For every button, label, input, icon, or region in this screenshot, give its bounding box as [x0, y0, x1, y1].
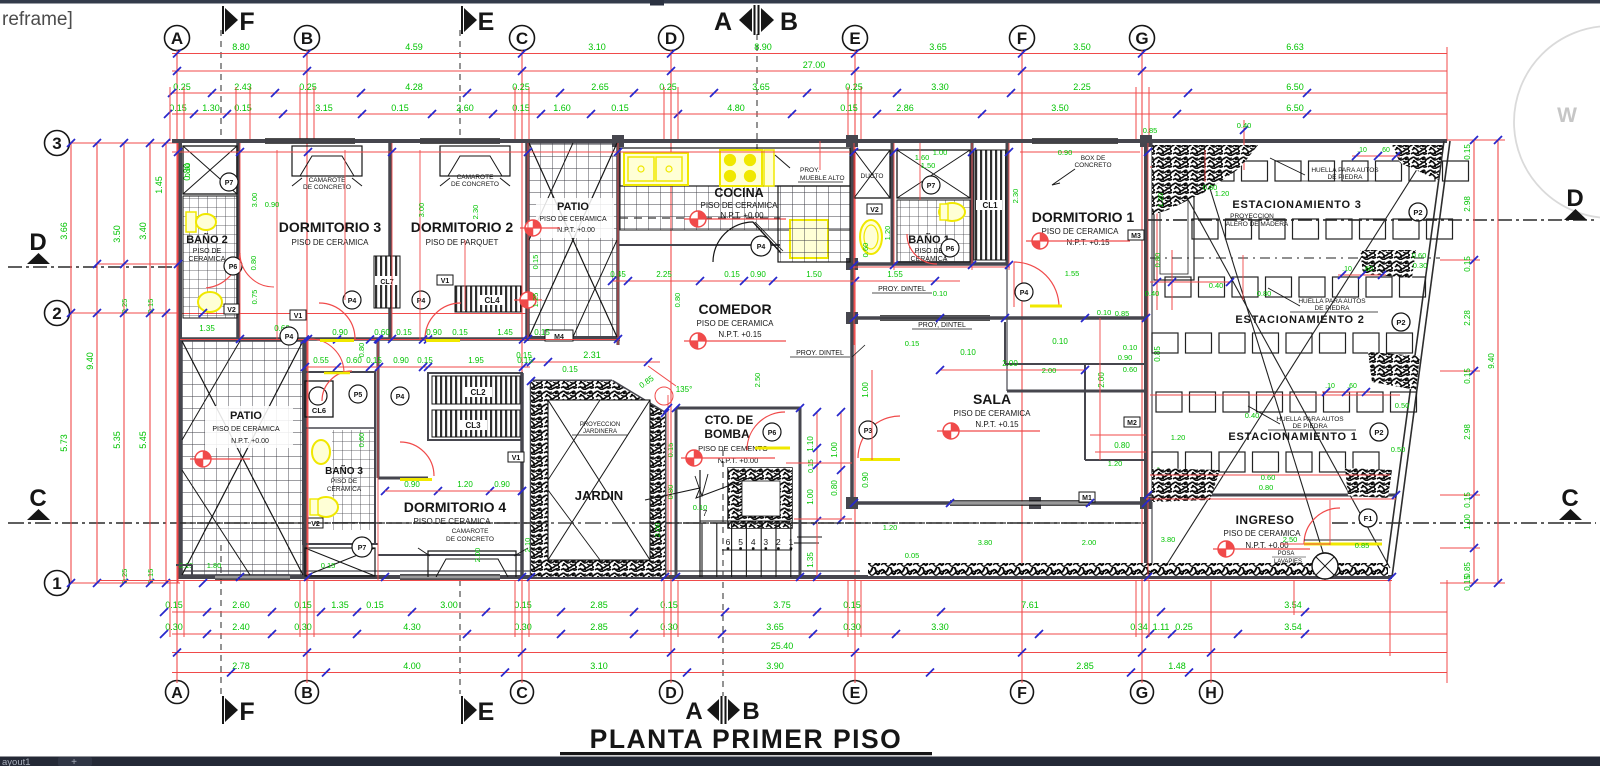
svg-text:0.10: 0.10 — [960, 348, 976, 357]
svg-text:P4: P4 — [396, 394, 405, 401]
svg-text:0.85: 0.85 — [1115, 309, 1130, 318]
svg-text:A: A — [685, 698, 702, 725]
svg-text:DORMITORIO 4: DORMITORIO 4 — [404, 499, 507, 515]
svg-text:0.90: 0.90 — [1118, 353, 1133, 362]
svg-text:0.15: 0.15 — [724, 270, 740, 279]
svg-text:A: A — [171, 29, 183, 48]
svg-text:N.P.T. +0.15: N.P.T. +0.15 — [1066, 238, 1110, 247]
svg-text:0.50: 0.50 — [1391, 445, 1406, 454]
svg-text:0.15: 0.15 — [562, 365, 578, 374]
svg-text:N.P.T. +0.15: N.P.T. +0.15 — [718, 330, 762, 339]
svg-text:reframe]: reframe] — [2, 9, 73, 30]
svg-text:1.95: 1.95 — [468, 356, 484, 365]
svg-text:G: G — [1136, 685, 1148, 702]
svg-text:N.P.T. +0.00: N.P.T. +0.00 — [557, 227, 595, 234]
svg-text:3.50: 3.50 — [112, 225, 122, 243]
svg-text:0.15: 0.15 — [611, 103, 629, 113]
svg-text:MUEBLE ALTO: MUEBLE ALTO — [800, 175, 845, 182]
svg-text:0.75: 0.75 — [250, 290, 259, 305]
svg-text:1.00: 1.00 — [806, 489, 815, 505]
svg-text:0.90: 0.90 — [265, 200, 280, 209]
svg-text:BAÑO 2: BAÑO 2 — [186, 233, 228, 246]
svg-text:3.54: 3.54 — [1284, 600, 1302, 610]
svg-text:8.90: 8.90 — [754, 42, 772, 52]
svg-text:0.15: 0.15 — [666, 443, 675, 458]
svg-text:0.80: 0.80 — [1153, 253, 1162, 268]
svg-text:7.61: 7.61 — [1021, 600, 1039, 610]
svg-text:DE PIEDRA: DE PIEDRA — [1314, 305, 1350, 312]
svg-text:3.80: 3.80 — [1161, 535, 1176, 544]
svg-text:0.60: 0.60 — [1123, 365, 1138, 374]
svg-text:PISO DE CERAMICA: PISO DE CERAMICA — [701, 201, 779, 210]
svg-text:1.20: 1.20 — [1108, 459, 1123, 468]
svg-text:1.50: 1.50 — [921, 161, 936, 170]
svg-text:P2: P2 — [1374, 428, 1383, 437]
svg-text:0.80: 0.80 — [1259, 483, 1274, 492]
svg-text:3.00: 3.00 — [250, 193, 259, 208]
svg-text:D: D — [29, 229, 46, 256]
svg-text:0.60: 0.60 — [1261, 473, 1276, 482]
svg-text:P7: P7 — [358, 545, 367, 552]
svg-text:P5: P5 — [354, 392, 363, 399]
svg-text:0.10: 0.10 — [933, 289, 948, 298]
svg-text:+: + — [71, 757, 77, 766]
svg-text:G: G — [1135, 29, 1148, 48]
svg-text:W: W — [1557, 104, 1577, 127]
svg-text:0.80: 0.80 — [666, 485, 675, 500]
svg-text:F: F — [1017, 29, 1027, 48]
svg-text:0.25: 0.25 — [659, 82, 677, 92]
svg-text:E: E — [850, 685, 861, 702]
svg-text:9.40: 9.40 — [1487, 353, 1496, 369]
svg-text:0.90: 0.90 — [861, 472, 870, 488]
svg-text:9.40: 9.40 — [85, 352, 95, 370]
svg-text:PISO DE CERAMICA: PISO DE CERAMICA — [292, 238, 370, 247]
svg-text:PISO DE PARQUET: PISO DE PARQUET — [426, 238, 499, 247]
svg-text:V1: V1 — [294, 313, 303, 320]
svg-text:0.60: 0.60 — [357, 433, 366, 448]
svg-text:2.00: 2.00 — [1082, 538, 1097, 547]
svg-text:COCINA: COCINA — [714, 186, 763, 200]
svg-text:DE PIEDRA: DE PIEDRA — [1292, 423, 1328, 430]
svg-text:0.15: 0.15 — [321, 561, 336, 570]
svg-text:BOMBA: BOMBA — [704, 427, 750, 441]
svg-text:DE PIEDRA: DE PIEDRA — [1327, 174, 1363, 181]
svg-text:DE CONCRETO: DE CONCRETO — [446, 536, 494, 543]
svg-text:2.10: 2.10 — [523, 538, 532, 553]
svg-text:3.65: 3.65 — [766, 622, 784, 632]
svg-text:1.20: 1.20 — [883, 523, 898, 532]
svg-text:2.50: 2.50 — [1283, 535, 1298, 544]
svg-text:3.80: 3.80 — [978, 538, 993, 547]
svg-text:0.15: 0.15 — [1463, 368, 1472, 384]
svg-text:0.40: 0.40 — [1145, 289, 1160, 298]
svg-text:2.85: 2.85 — [590, 622, 608, 632]
svg-text:C: C — [29, 485, 46, 512]
svg-text:0.15: 0.15 — [531, 255, 540, 270]
svg-text:B: B — [301, 685, 313, 702]
svg-text:1.25: 1.25 — [531, 293, 540, 308]
svg-text:2.65: 2.65 — [591, 82, 609, 92]
svg-text:0.25: 0.25 — [1175, 622, 1193, 632]
svg-text:BAÑO 3: BAÑO 3 — [325, 464, 363, 477]
svg-text:1.20: 1.20 — [457, 480, 473, 489]
svg-text:0.85: 0.85 — [1355, 541, 1370, 550]
svg-text:P2: P2 — [1396, 318, 1405, 327]
svg-text:P7: P7 — [225, 180, 234, 187]
svg-text:1.20: 1.20 — [1171, 433, 1186, 442]
svg-text:D: D — [665, 685, 677, 702]
svg-text:0.90: 0.90 — [494, 480, 510, 489]
svg-text:3.50: 3.50 — [1051, 103, 1069, 113]
svg-text:PROY.: PROY. — [800, 167, 820, 174]
svg-text:4.30: 4.30 — [403, 622, 421, 632]
svg-text:P4: P4 — [417, 298, 426, 305]
svg-text:2.31: 2.31 — [583, 350, 601, 360]
svg-text:0.15: 0.15 — [1463, 492, 1472, 508]
svg-text:PROY. DINTEL: PROY. DINTEL — [796, 350, 844, 357]
svg-text:E: E — [478, 698, 495, 726]
svg-text:PISO DE: PISO DE — [915, 248, 944, 255]
svg-text:D: D — [1566, 185, 1583, 212]
svg-text:E: E — [849, 29, 860, 48]
svg-text:A: A — [171, 685, 183, 702]
svg-text:4.80: 4.80 — [727, 103, 745, 113]
svg-text:PROYECCION: PROYECCION — [580, 422, 620, 428]
svg-text:B: B — [742, 698, 759, 725]
svg-text:1.00: 1.00 — [1463, 514, 1472, 530]
svg-text:1.60: 1.60 — [553, 103, 571, 113]
svg-text:1.45: 1.45 — [154, 176, 164, 194]
svg-text:V1: V1 — [512, 455, 521, 462]
svg-text:0.80: 0.80 — [357, 343, 366, 358]
svg-text:1.50: 1.50 — [806, 270, 822, 279]
svg-text:JARDINERA: JARDINERA — [583, 429, 617, 435]
svg-text:DORMITORIO 2: DORMITORIO 2 — [411, 219, 514, 235]
svg-text:B: B — [301, 29, 313, 48]
svg-text:CERAMICA: CERAMICA — [327, 486, 362, 493]
svg-text:2.30: 2.30 — [1011, 189, 1020, 204]
svg-text:2.30: 2.30 — [471, 205, 480, 220]
svg-text:2.86: 2.86 — [896, 103, 914, 113]
svg-text:.10: .10 — [1342, 266, 1352, 273]
svg-text:1.35: 1.35 — [199, 324, 215, 333]
svg-text:0.40: 0.40 — [1237, 121, 1252, 130]
svg-text:D: D — [665, 29, 677, 48]
svg-text:0.15: 0.15 — [1463, 144, 1472, 160]
svg-text:M4: M4 — [554, 334, 564, 341]
svg-text:0.10: 0.10 — [693, 503, 708, 512]
svg-text:1.00: 1.00 — [861, 382, 870, 398]
svg-text:PISO DE CERAMICA: PISO DE CERAMICA — [1042, 227, 1120, 236]
svg-text:C: C — [1561, 485, 1578, 512]
svg-text:CL3: CL3 — [465, 421, 481, 430]
svg-text:2.00: 2.00 — [473, 548, 482, 563]
svg-text:CAMAROTE: CAMAROTE — [452, 528, 490, 535]
svg-text:ESTACIONAMIENTO 3: ESTACIONAMIENTO 3 — [1232, 199, 1361, 211]
svg-text:2.85: 2.85 — [1076, 661, 1094, 671]
svg-text:25.40: 25.40 — [771, 641, 794, 651]
svg-text:2.28: 2.28 — [1463, 310, 1472, 326]
svg-text:0.85: 0.85 — [1153, 346, 1162, 362]
svg-text:DORMITORIO 1: DORMITORIO 1 — [1032, 209, 1135, 225]
svg-text:H: H — [1205, 685, 1217, 702]
svg-text:1.55: 1.55 — [887, 270, 903, 279]
svg-text:0.15: 0.15 — [146, 299, 155, 314]
svg-text:0.30: 0.30 — [1413, 261, 1428, 270]
svg-text:ALERO DE MADERA: ALERO DE MADERA — [1226, 221, 1289, 228]
svg-text:C: C — [516, 685, 528, 702]
svg-text:P7: P7 — [927, 183, 936, 190]
svg-text:3.00: 3.00 — [417, 203, 426, 218]
svg-text:3.54: 3.54 — [1284, 622, 1302, 632]
svg-text:2.60: 2.60 — [232, 600, 250, 610]
svg-text:2: 2 — [52, 304, 61, 323]
svg-text:3.50: 3.50 — [1073, 42, 1091, 52]
svg-text:5.45: 5.45 — [138, 431, 148, 449]
svg-text:SALA: SALA — [973, 391, 1011, 407]
svg-text:1.80: 1.80 — [207, 561, 222, 570]
svg-text:5: 5 — [738, 537, 743, 547]
svg-text:CONCRETO: CONCRETO — [1074, 162, 1111, 169]
svg-text:0.15: 0.15 — [1463, 575, 1472, 591]
svg-text:0.60: 0.60 — [183, 163, 192, 178]
svg-text:0.80: 0.80 — [1114, 441, 1130, 450]
svg-text:DORMITORIO 3: DORMITORIO 3 — [279, 219, 382, 235]
svg-text:CL4: CL4 — [484, 296, 500, 305]
svg-text:0.30: 0.30 — [843, 622, 861, 632]
svg-text:PROY, DINTEL: PROY, DINTEL — [918, 322, 966, 329]
svg-text:0.90: 0.90 — [426, 328, 442, 337]
svg-text:1: 1 — [789, 537, 794, 547]
svg-text:PISO DE CERAMICA: PISO DE CERAMICA — [539, 216, 607, 223]
svg-text:0.10: 0.10 — [1097, 308, 1112, 317]
svg-text:0.80: 0.80 — [830, 480, 839, 496]
svg-text:0.15: 0.15 — [391, 103, 409, 113]
svg-text:1.20: 1.20 — [1156, 193, 1165, 208]
svg-text:P6: P6 — [229, 264, 238, 271]
svg-text:1.35: 1.35 — [806, 552, 815, 568]
svg-text:3.65: 3.65 — [929, 42, 947, 52]
svg-text:2.98: 2.98 — [1463, 196, 1472, 212]
svg-text:135°: 135° — [676, 385, 693, 394]
svg-text:ESTACIONAMIENTO 2: ESTACIONAMIENTO 2 — [1235, 314, 1364, 326]
svg-text:P6: P6 — [768, 430, 777, 437]
svg-text:1.48: 1.48 — [1168, 661, 1186, 671]
svg-text:PISO DE CERAMICA: PISO DE CERAMICA — [954, 409, 1032, 418]
svg-text:1.00: 1.00 — [830, 442, 839, 458]
svg-text:PROYECCION: PROYECCION — [1230, 213, 1274, 220]
svg-text:F: F — [1017, 685, 1027, 702]
svg-text:N.P.T. +0.00: N.P.T. +0.00 — [718, 456, 759, 465]
svg-text:4: 4 — [751, 537, 756, 547]
svg-text:0.90: 0.90 — [404, 480, 420, 489]
svg-text:1.11: 1.11 — [1153, 622, 1170, 632]
svg-text:PATIO: PATIO — [230, 410, 262, 422]
svg-text:0.80: 0.80 — [1257, 289, 1272, 298]
svg-text:6: 6 — [726, 537, 731, 547]
svg-text:BOX DE: BOX DE — [1081, 155, 1106, 162]
svg-text:M3: M3 — [1131, 233, 1141, 240]
svg-text:V2: V2 — [870, 207, 879, 214]
svg-text:6.50: 6.50 — [1286, 82, 1304, 92]
svg-text:0.25: 0.25 — [120, 569, 129, 584]
svg-text:0.60: 0.60 — [861, 243, 870, 258]
svg-text:0.15: 0.15 — [905, 339, 920, 348]
svg-text:1.45: 1.45 — [497, 328, 513, 337]
svg-text:0.85: 0.85 — [1143, 126, 1158, 135]
svg-text:P4: P4 — [348, 298, 357, 305]
svg-text:2.40: 2.40 — [232, 622, 250, 632]
svg-text:CAMAROTE: CAMAROTE — [457, 174, 495, 181]
svg-text:CERAMICA: CERAMICA — [189, 256, 226, 263]
svg-text:V2: V2 — [227, 307, 236, 314]
svg-text:F: F — [239, 698, 254, 726]
svg-text:PISO DE CERAMICA: PISO DE CERAMICA — [414, 517, 492, 526]
svg-text:PISO DE CERAMICA: PISO DE CERAMICA — [697, 319, 775, 328]
svg-text:V1: V1 — [441, 278, 450, 285]
svg-text:2.00: 2.00 — [1097, 372, 1106, 388]
svg-text:INGRESO: INGRESO — [1236, 513, 1295, 527]
svg-text:CL2: CL2 — [470, 388, 486, 397]
svg-text:3.30: 3.30 — [931, 622, 949, 632]
svg-text:4.59: 4.59 — [405, 42, 423, 52]
svg-text:M1: M1 — [1082, 495, 1092, 502]
svg-text:P4: P4 — [1020, 290, 1029, 297]
svg-text:3.66: 3.66 — [59, 222, 69, 240]
svg-text:3.10: 3.10 — [588, 42, 606, 52]
svg-text:5.73: 5.73 — [59, 434, 69, 452]
svg-text:0.30: 0.30 — [294, 622, 312, 632]
svg-text:0.10: 0.10 — [1123, 343, 1138, 352]
svg-text:E: E — [478, 8, 495, 36]
svg-text:CERAMICA: CERAMICA — [911, 256, 948, 263]
svg-text:3.75: 3.75 — [773, 600, 791, 610]
svg-text:CTO. DE: CTO. DE — [705, 413, 753, 427]
svg-text:0.80: 0.80 — [249, 256, 258, 271]
svg-text:0.25: 0.25 — [120, 299, 129, 314]
svg-text:0.90: 0.90 — [393, 356, 409, 365]
svg-text:2.25: 2.25 — [1073, 82, 1091, 92]
svg-text:1: 1 — [52, 574, 61, 593]
svg-text:1.55: 1.55 — [1065, 269, 1080, 278]
svg-text:CL6: CL6 — [312, 406, 326, 415]
svg-text:HUELLA PARA AUTOS: HUELLA PARA AUTOS — [1311, 167, 1379, 174]
svg-text:F1: F1 — [1364, 514, 1373, 523]
svg-text:ayout1: ayout1 — [2, 757, 31, 766]
svg-text:P2: P2 — [1413, 208, 1422, 217]
svg-text:8.80: 8.80 — [232, 42, 250, 52]
svg-text:PISO DE CERAMICA: PISO DE CERAMICA — [212, 426, 280, 433]
svg-text:PATIO: PATIO — [557, 201, 589, 213]
svg-text:JARDIN: JARDIN — [575, 488, 623, 503]
svg-text:0.90: 0.90 — [1058, 148, 1073, 157]
svg-text:P6: P6 — [946, 246, 955, 253]
svg-text:V2: V2 — [311, 521, 320, 528]
svg-text:3.65: 3.65 — [752, 82, 770, 92]
svg-text:0.90: 0.90 — [750, 270, 766, 279]
svg-text:3.30: 3.30 — [931, 82, 949, 92]
svg-text:5.35: 5.35 — [112, 431, 122, 449]
svg-text:P4: P4 — [757, 244, 766, 251]
svg-text:2.25: 2.25 — [656, 270, 672, 279]
svg-text:0.15: 0.15 — [452, 328, 468, 337]
svg-text:F: F — [239, 8, 254, 36]
svg-text:3.00: 3.00 — [440, 600, 458, 610]
svg-text:M2: M2 — [1127, 420, 1137, 427]
svg-text:0.34: 0.34 — [1130, 622, 1148, 632]
svg-text:3: 3 — [763, 537, 768, 547]
svg-text:COMEDOR: COMEDOR — [698, 301, 771, 317]
svg-text:0.10: 0.10 — [1052, 337, 1068, 346]
svg-text:2.98: 2.98 — [1463, 424, 1472, 440]
svg-text:3.90: 3.90 — [766, 661, 784, 671]
svg-text:CAMAROTE: CAMAROTE — [309, 177, 347, 184]
svg-text:6.50: 6.50 — [1286, 103, 1304, 113]
svg-text:2.00: 2.00 — [1042, 366, 1057, 375]
svg-text:0.15: 0.15 — [660, 600, 678, 610]
svg-text:1.20: 1.20 — [883, 226, 892, 241]
svg-text:0.60: 0.60 — [1412, 251, 1427, 260]
svg-text:CL1: CL1 — [982, 201, 998, 210]
svg-text:PISO DE: PISO DE — [331, 478, 358, 485]
svg-text:DE CONCRETO: DE CONCRETO — [303, 184, 351, 191]
svg-text:N.P.T. +0.00: N.P.T. +0.00 — [231, 438, 269, 445]
svg-text:2.00: 2.00 — [653, 523, 662, 538]
svg-text:6.63: 6.63 — [1286, 42, 1304, 52]
svg-text:2.43: 2.43 — [234, 82, 252, 92]
svg-text:0.15: 0.15 — [396, 328, 412, 337]
svg-text:0.15: 0.15 — [234, 103, 252, 113]
svg-text:1.00: 1.00 — [933, 148, 948, 157]
svg-text:0.55: 0.55 — [313, 356, 329, 365]
svg-text:POSA: POSA — [1278, 551, 1295, 557]
svg-text:2.85: 2.85 — [590, 600, 608, 610]
svg-text:B: B — [780, 8, 798, 36]
svg-text:3: 3 — [52, 134, 61, 153]
svg-text:3.10: 3.10 — [590, 661, 608, 671]
svg-text:2.00: 2.00 — [1002, 359, 1018, 368]
svg-text:PISO DE: PISO DE — [193, 248, 222, 255]
svg-text:2.60: 2.60 — [456, 103, 474, 113]
svg-text:0.15: 0.15 — [294, 600, 312, 610]
svg-text:1.10: 1.10 — [806, 436, 815, 452]
svg-text:P3: P3 — [864, 428, 873, 435]
svg-text:0.15: 0.15 — [534, 328, 550, 337]
svg-text:0.50: 0.50 — [1395, 401, 1410, 410]
svg-text:C: C — [516, 29, 528, 48]
svg-text:0.40: 0.40 — [1209, 281, 1224, 290]
svg-text:4.00: 4.00 — [403, 661, 421, 671]
svg-text:0.15: 0.15 — [146, 569, 155, 584]
svg-text:1.35: 1.35 — [331, 600, 349, 610]
svg-text:2.50: 2.50 — [753, 373, 762, 388]
svg-text:DUCTO: DUCTO — [861, 173, 884, 180]
svg-text:PLANTA PRIMER PISO: PLANTA PRIMER PISO — [590, 724, 903, 754]
svg-text:0.05: 0.05 — [905, 551, 920, 560]
svg-text:0.30: 0.30 — [660, 622, 678, 632]
svg-text:0.15: 0.15 — [808, 459, 815, 473]
svg-text:0.15: 0.15 — [366, 600, 384, 610]
svg-text:N.P.T. +0.15: N.P.T. +0.15 — [975, 420, 1019, 429]
svg-text:1.30: 1.30 — [202, 103, 220, 113]
svg-text:0.15: 0.15 — [840, 103, 858, 113]
svg-text:P4: P4 — [285, 334, 294, 341]
svg-text:DE CONCRETO: DE CONCRETO — [451, 181, 499, 188]
svg-text:0.25: 0.25 — [173, 82, 191, 92]
svg-text:2: 2 — [776, 537, 781, 547]
svg-text:4.28: 4.28 — [405, 82, 423, 92]
